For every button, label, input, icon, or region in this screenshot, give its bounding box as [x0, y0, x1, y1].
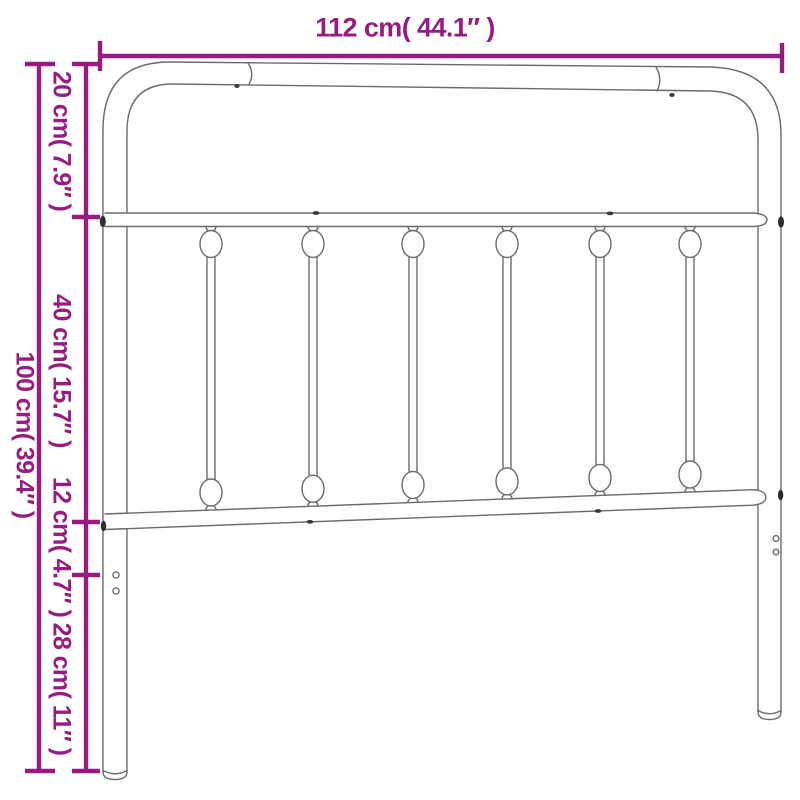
dim-label-overall-height: 100 cm( 39.4″ )	[12, 352, 37, 519]
spindle	[589, 227, 611, 496]
tube-weld-seam	[656, 67, 660, 91]
post-bolt	[778, 490, 783, 500]
post-bolt	[778, 216, 784, 227]
right-leg-screw-hole	[773, 536, 779, 542]
top-tube	[103, 62, 781, 140]
upper-rail	[105, 211, 767, 226]
headboard-drawing	[100, 62, 784, 780]
rail-screw	[607, 212, 614, 216]
left-post	[103, 130, 127, 780]
spindle	[402, 227, 424, 503]
dim-line-height-segments	[72, 64, 100, 771]
left-leg-screw-hole	[113, 572, 119, 578]
dim-label-segment-40cm: 40 cm( 15.7″ )	[49, 294, 74, 448]
rail-screw	[595, 509, 602, 513]
tube-screw	[669, 93, 674, 97]
spindles	[200, 227, 701, 511]
dim-label-segment-28cm: 28 cm( 11″ )	[49, 623, 74, 756]
tube-screw	[234, 84, 239, 88]
tube-weld-seam	[248, 63, 252, 84]
spindle	[302, 227, 324, 507]
spindle	[496, 227, 518, 499]
post-bolt	[101, 521, 106, 531]
dimension-lines	[25, 41, 782, 771]
headboard-diagram-svg	[0, 0, 800, 800]
product-dimension-image: 112 cm( 44.1″ ) 100 cm( 39.4″ ) 20 cm( 7…	[0, 0, 800, 800]
spindle	[200, 227, 222, 511]
right-leg-screw-hole	[773, 549, 779, 555]
post-bolt	[100, 216, 106, 227]
spindle	[679, 227, 701, 493]
dim-label-segment-12cm: 12 cm( 4.7″ )	[49, 477, 74, 617]
dim-line-top-width	[100, 41, 782, 73]
rail-screw	[307, 520, 314, 524]
left-leg-screw-hole	[113, 588, 119, 594]
rail-screw	[313, 211, 320, 215]
dim-label-segment-20cm: 20 cm( 7.9″ )	[49, 71, 74, 211]
dim-label-top-width: 112 cm( 44.1″ )	[315, 15, 495, 42]
